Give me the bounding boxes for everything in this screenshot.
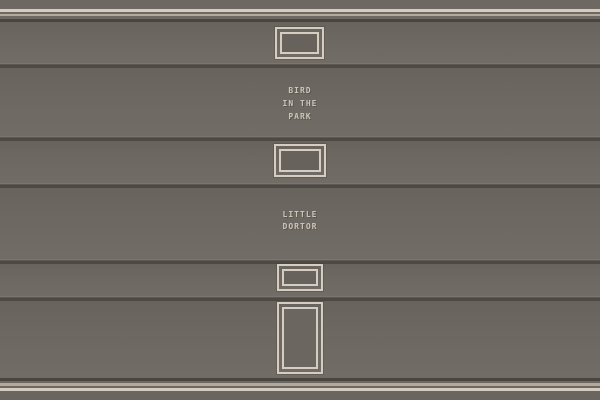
sign-line: PARK: [0, 110, 600, 123]
sign-bird-in-the-park[interactable]: BIRD IN THE PARK: [0, 84, 600, 123]
cornice-trim-line-upper: [0, 9, 600, 12]
sign-line: LITTLE: [0, 209, 600, 221]
window-frame-transom[interactable]: [277, 264, 323, 291]
door-frame[interactable]: [277, 302, 323, 374]
window-frame-top[interactable]: [275, 27, 324, 59]
sign-line: BIRD: [0, 84, 600, 97]
sign-line: IN THE: [0, 97, 600, 110]
window-pane: [279, 149, 321, 172]
window-pane: [282, 269, 318, 286]
window-frame-middle[interactable]: [274, 144, 326, 177]
cornice-trim-line-lower: [0, 14, 600, 16]
door-panel: [282, 307, 318, 369]
window-pane: [280, 32, 319, 54]
floor-strip: [0, 391, 600, 400]
baseboard-trim-line-upper: [0, 383, 600, 386]
baseboard-shadow-line: [0, 378, 600, 381]
sign-little-dortor[interactable]: LITTLE DORTOR: [0, 209, 600, 233]
sign-line: DORTOR: [0, 221, 600, 233]
wall-scene: BIRD IN THE PARK LITTLE DORTOR: [0, 0, 600, 400]
